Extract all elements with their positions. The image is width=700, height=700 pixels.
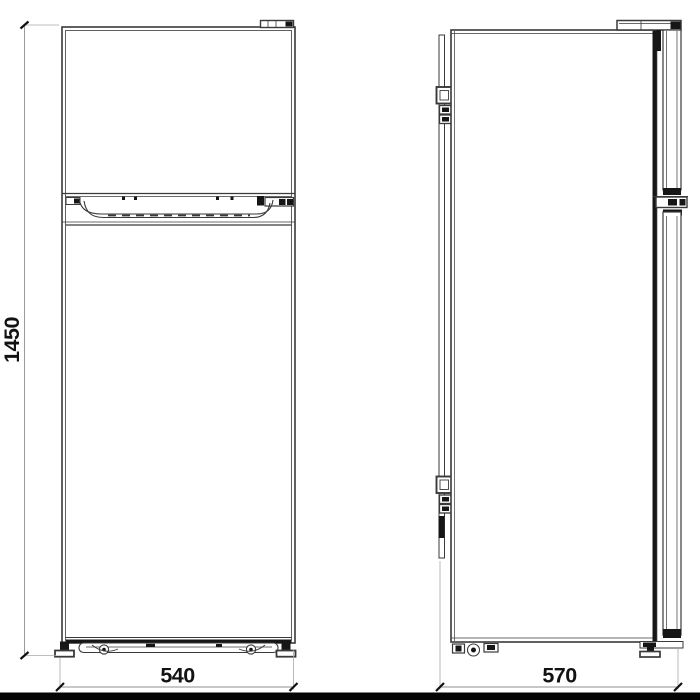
side-view (437, 21, 689, 658)
front-cabinet-outline (62, 27, 295, 643)
top-hinge-cover-front (261, 21, 294, 28)
hinge-pin (657, 30, 662, 51)
bottom-hinge-side (640, 642, 683, 658)
side-cabinet-outline (451, 30, 657, 642)
width-dimension: 540 (56, 650, 298, 691)
front-base (55, 638, 296, 657)
height-dimension-label: 1450 (0, 317, 24, 363)
middle-hinge-side (653, 197, 688, 208)
width-dimension-label: 540 (160, 664, 195, 688)
middle-hinge-front (257, 196, 294, 206)
height-dimension: 1450 (0, 22, 59, 660)
footer-bar (0, 693, 700, 700)
depth-dimension-label: 570 (542, 664, 577, 688)
door-gap-shadow (653, 30, 657, 642)
refrigerator-dimension-diagram: 1450 540 570 (0, 0, 700, 700)
rear-foot-assembly-side (453, 644, 499, 657)
front-view (55, 21, 296, 657)
refrigerator-door-side (663, 210, 682, 639)
leveling-foot-side-front (640, 652, 660, 658)
freezer-door-side (663, 30, 681, 195)
